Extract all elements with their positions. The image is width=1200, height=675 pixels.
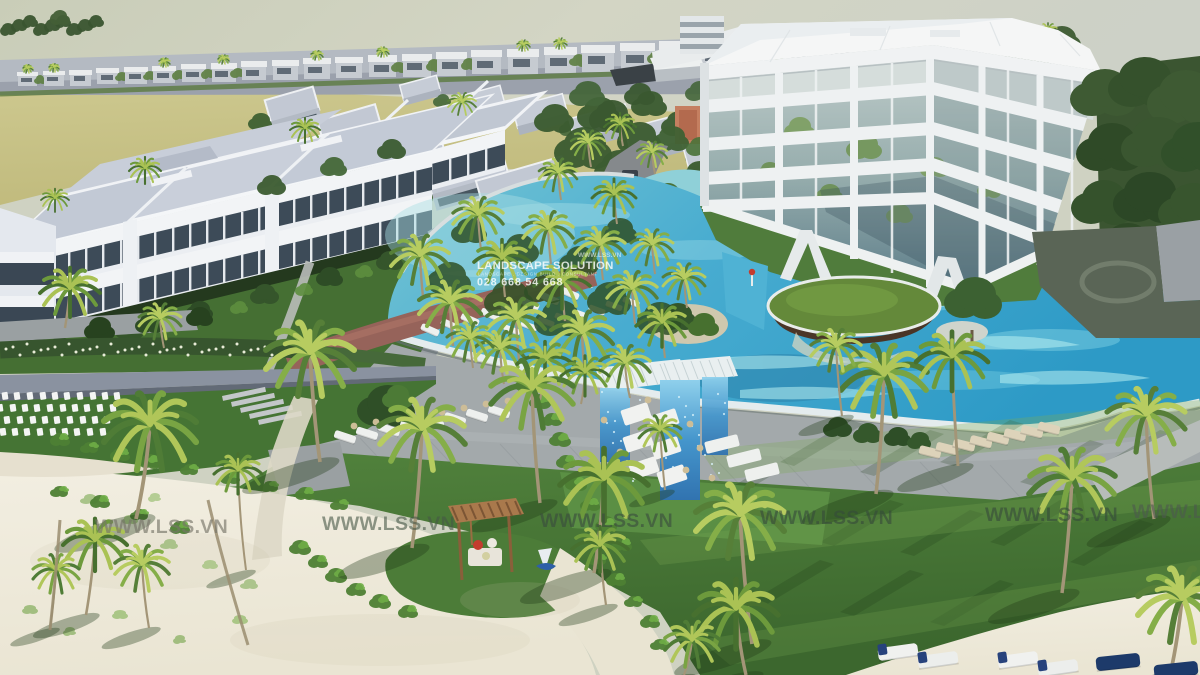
svg-text:LANDSCAPE SOLUTION: LANDSCAPE SOLUTION bbox=[477, 260, 614, 272]
svg-text:WWW.LSS.VN: WWW.LSS.VN bbox=[540, 510, 673, 532]
svg-text:WWW.LSS.VN: WWW.LSS.VN bbox=[578, 252, 622, 259]
svg-text:WWW.LSS.VN: WWW.LSS.VN bbox=[1132, 501, 1200, 523]
svg-text:WWW.LSS.VN: WWW.LSS.VN bbox=[985, 504, 1118, 526]
svg-text:028 668 54 668: 028 668 54 668 bbox=[477, 277, 563, 289]
svg-text:WWW.LSS.VN: WWW.LSS.VN bbox=[322, 513, 455, 535]
svg-text:WWW.LSS.VN: WWW.LSS.VN bbox=[95, 516, 228, 538]
svg-text:WWW.LSS.VN: WWW.LSS.VN bbox=[760, 507, 893, 529]
